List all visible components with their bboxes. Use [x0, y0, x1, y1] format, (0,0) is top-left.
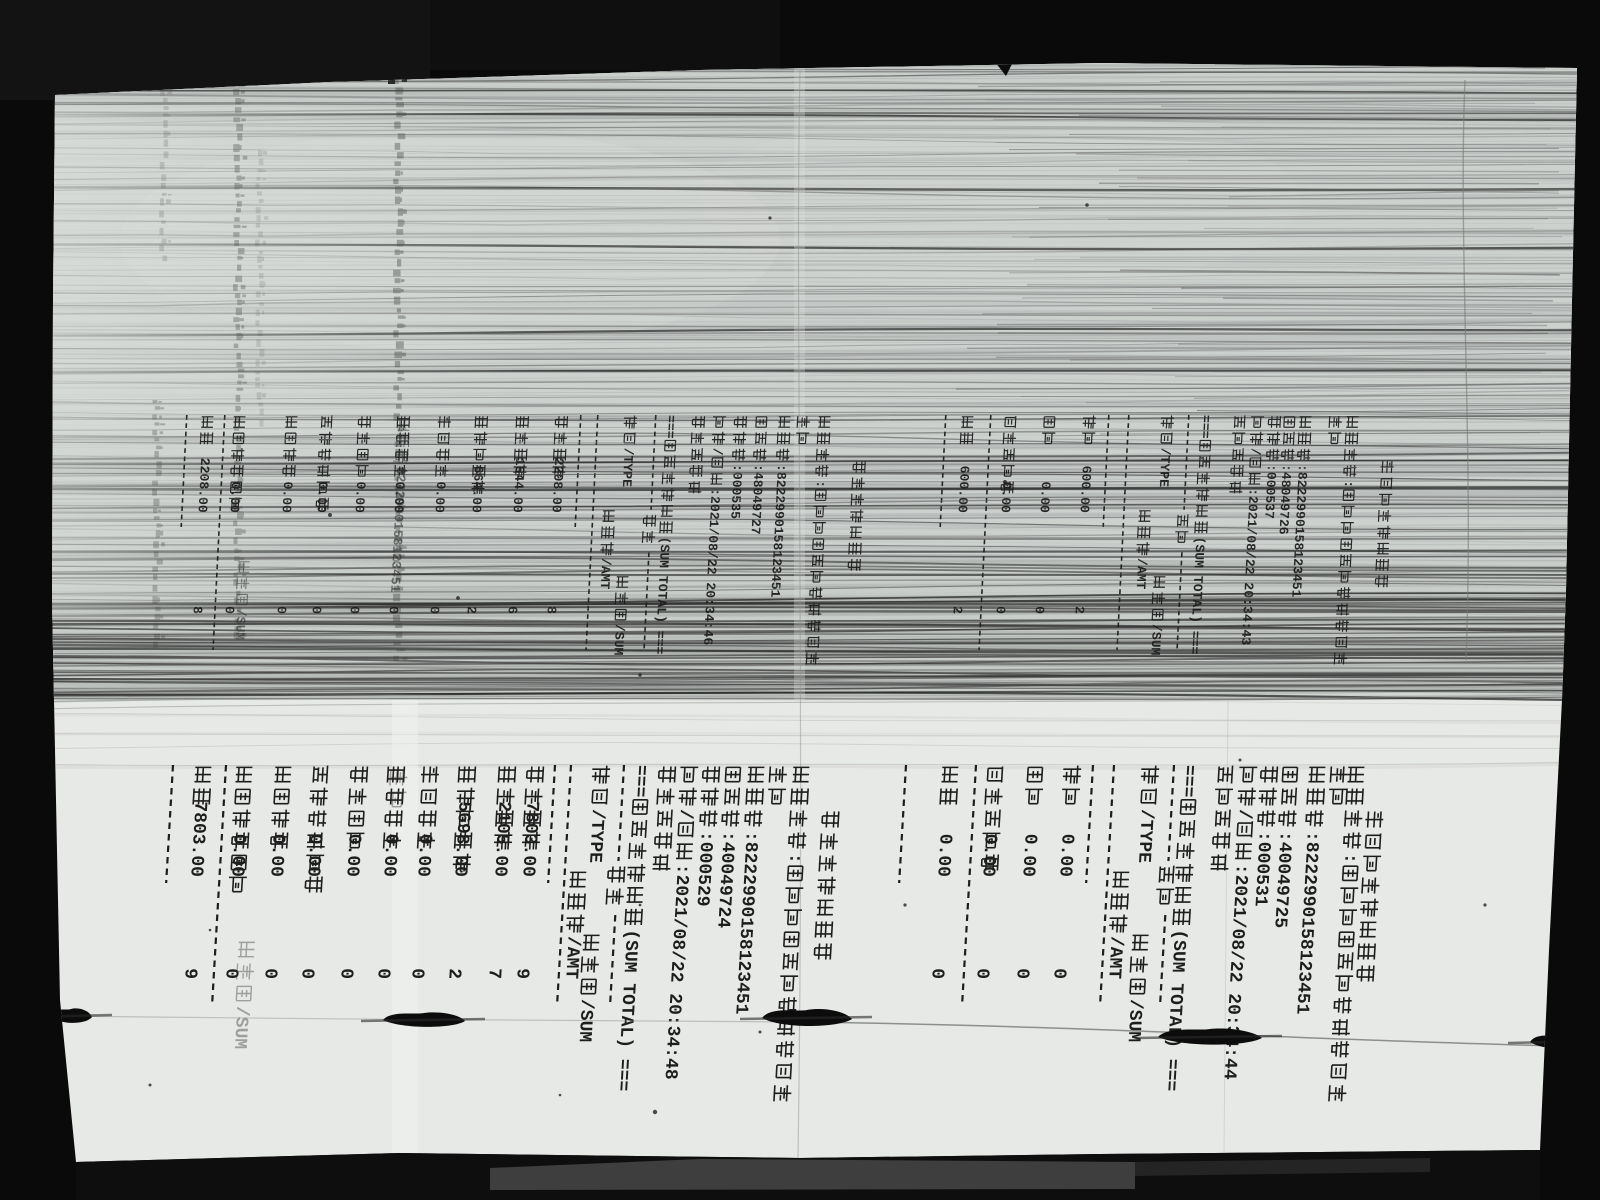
svg-text:/: /: [675, 809, 696, 820]
svg-text:0.00: 0.00: [378, 834, 400, 877]
svg-text::: :: [1339, 853, 1360, 864]
svg-text:9: 9: [179, 968, 200, 979]
svg-text:===: ===: [662, 415, 678, 439]
svg-text:/SUM: /SUM: [232, 609, 249, 641]
svg-text:===: ===: [629, 765, 651, 797]
svg-text:0.00: 0.00: [1054, 834, 1076, 877]
svg-text:0.00: 0.00: [997, 482, 1014, 514]
svg-text:2208.00: 2208.00: [195, 458, 213, 513]
svg-text:0: 0: [926, 968, 947, 979]
svg-text:/AMT: /AMT: [1103, 936, 1125, 979]
svg-text:664.00: 664.00: [469, 466, 486, 513]
svg-text:0: 0: [346, 606, 361, 614]
svg-text:0.00: 0.00: [341, 834, 363, 877]
svg-text:7: 7: [483, 968, 504, 979]
svg-text:0: 0: [1048, 968, 1069, 979]
svg-text:===: ===: [1177, 765, 1199, 797]
svg-text:/: /: [1234, 809, 1255, 820]
svg-text:0: 0: [335, 968, 356, 979]
svg-text:0.00: 0.00: [932, 834, 954, 877]
svg-text:/SUM: /SUM: [610, 624, 627, 656]
svg-text:0.00: 0.00: [302, 834, 324, 877]
svg-text:0.00: 0.00: [1036, 482, 1053, 514]
svg-text::000535: :000535: [727, 464, 745, 519]
svg-text:0: 0: [992, 606, 1007, 614]
svg-text:1544.00: 1544.00: [510, 458, 528, 513]
svg-text::: :: [784, 853, 805, 864]
svg-text:/: /: [709, 448, 724, 456]
svg-text:0: 0: [372, 968, 393, 979]
svg-text:0: 0: [1011, 968, 1032, 979]
svg-text:===: ===: [1197, 415, 1213, 439]
svg-text:6: 6: [504, 606, 519, 614]
svg-text:2208.00: 2208.00: [549, 458, 567, 513]
svg-text:0: 0: [308, 606, 323, 614]
svg-text:8: 8: [543, 606, 558, 614]
svg-text:0: 0: [273, 606, 288, 614]
svg-text:0.00: 0.00: [412, 834, 434, 877]
svg-text:0: 0: [971, 968, 992, 979]
svg-text:0.00: 0.00: [265, 834, 287, 877]
svg-text:/TYPE: /TYPE: [1156, 448, 1173, 487]
svg-text:/TYPE: /TYPE: [584, 809, 607, 863]
svg-text:/TYPE: /TYPE: [1133, 809, 1156, 863]
svg-text:0.00: 0.00: [226, 834, 248, 877]
svg-text:/AMT: /AMT: [597, 558, 614, 590]
svg-text:/SUM: /SUM: [229, 1006, 251, 1049]
svg-text:600.00: 600.00: [955, 466, 972, 513]
svg-text:0: 0: [1031, 606, 1046, 614]
svg-text::: :: [1341, 480, 1356, 488]
svg-text:/SUM: /SUM: [1123, 999, 1145, 1042]
svg-text:/TYPE: /TYPE: [619, 448, 636, 487]
svg-text:2: 2: [463, 606, 478, 614]
svg-text::000537: :000537: [1261, 464, 1279, 519]
svg-text:0: 0: [406, 968, 427, 979]
svg-text:0.00: 0.00: [431, 482, 448, 514]
svg-text:0: 0: [259, 968, 280, 979]
svg-text:2: 2: [443, 968, 464, 979]
svg-text:2: 2: [949, 606, 964, 614]
svg-text:0.00: 0.00: [977, 834, 999, 877]
svg-text:0: 0: [296, 968, 317, 979]
svg-text:600.00: 600.00: [1077, 466, 1094, 513]
svg-text:/AMT: /AMT: [560, 936, 582, 979]
svg-text:9: 9: [511, 968, 532, 979]
svg-text:0.00: 0.00: [1017, 834, 1039, 877]
